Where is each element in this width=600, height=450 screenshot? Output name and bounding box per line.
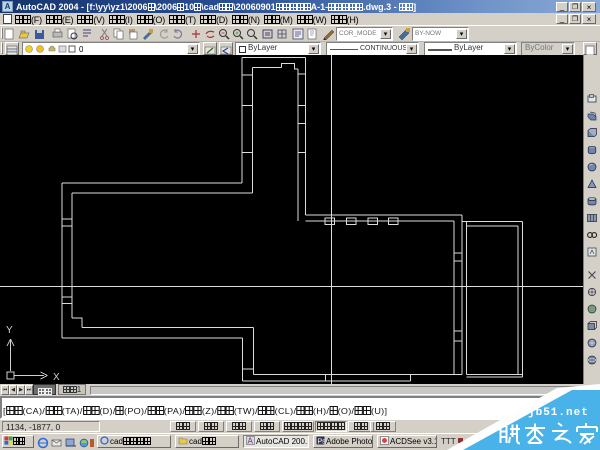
svg-text:X: X <box>53 372 60 383</box>
svg-text:Y: Y <box>6 325 13 336</box>
svg-text:0: 0 <box>79 45 83 54</box>
svg-text:A: A <box>248 437 254 446</box>
svg-text:Ps: Ps <box>318 439 326 446</box>
